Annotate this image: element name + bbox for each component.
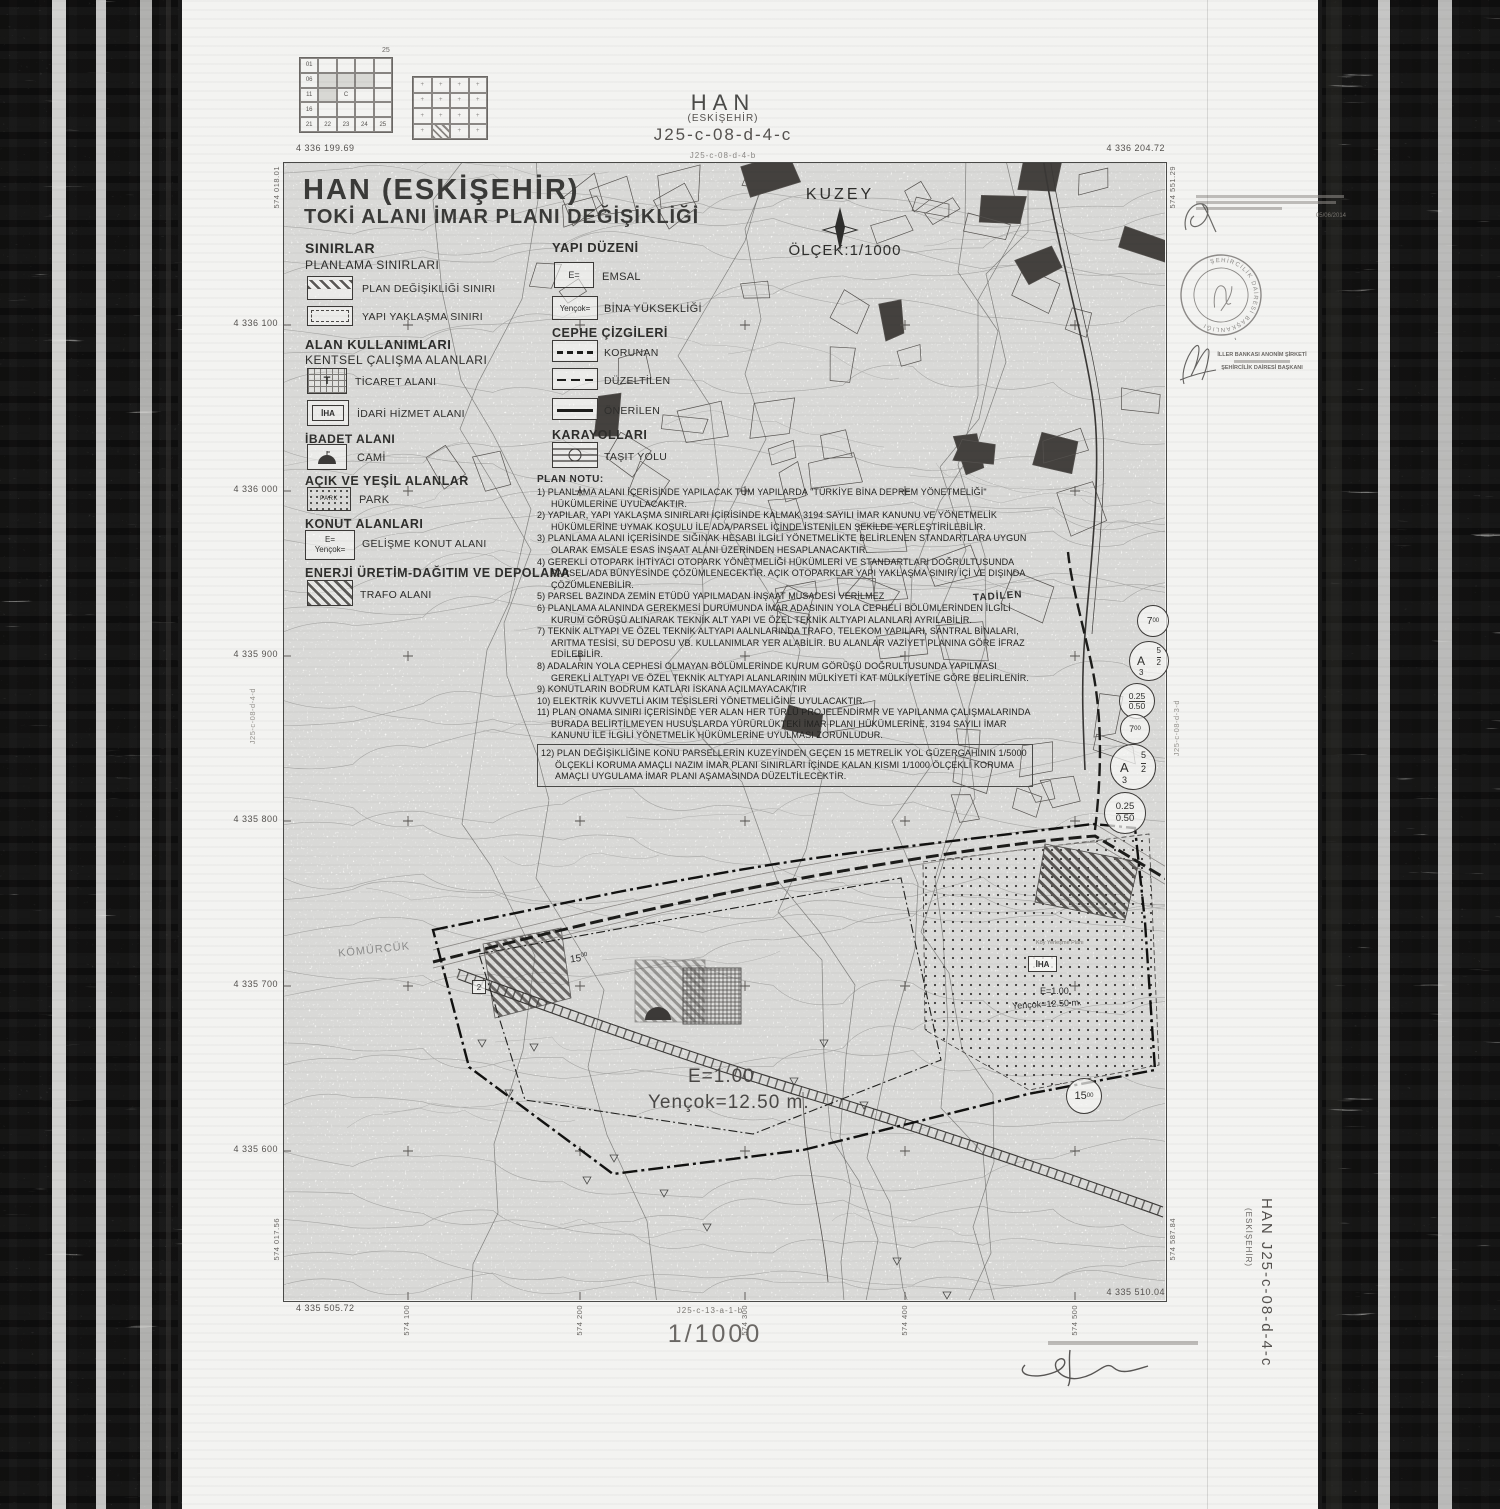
legend-yapi-duzeni-heading: YAPI DÜZENİ — [552, 240, 639, 255]
corner-coordinate-ne: 4 335 505.72 — [296, 1303, 355, 1313]
grid-northing-label: 4 336 100 — [232, 318, 278, 328]
index-cell — [374, 102, 392, 117]
legend-karayollari-heading: KARAYOLLARI — [552, 428, 647, 442]
plan-note: 2) YAPILAR, YAPI YAKLAŞMA SINIRLARI İÇİR… — [537, 510, 1033, 533]
plan-note: 4) GEREKLİ OTOPARK İHTİYACI OTOPARK YÖNE… — [537, 557, 1033, 592]
index-quad-cell: + — [413, 93, 432, 109]
index-cell: 21 — [300, 117, 318, 132]
index-cell — [355, 88, 373, 103]
index-cell — [337, 102, 355, 117]
corner-easting: 574 587.84 — [1168, 1218, 1177, 1261]
index-quad-cell: + — [432, 93, 451, 109]
scan-noise-left — [0, 0, 182, 1509]
legend-enerji-heading: ENERJİ ÜRETİM-DAĞITIM VE DEPOLAMA — [305, 566, 570, 580]
signatory-org: İLLER BANKASI ANONİM ŞİRKETİ — [1204, 352, 1320, 358]
parcel-number-box: 2 — [472, 980, 486, 994]
index-corner-label: 25 — [382, 47, 390, 54]
footer-scale: 1/1000 — [590, 1320, 840, 1349]
corner-easting: 574 018.01 — [272, 166, 281, 209]
building-height-swatch: Yençok= — [552, 296, 598, 320]
adjacent-sheet-right: J25-c-08-d-3-d — [1172, 700, 1181, 756]
index-cell — [374, 88, 392, 103]
adjacent-sheet-left: J25-c-08-d-4-d — [248, 688, 257, 744]
plan-note: 9) KONUTLARIN BODRUM KATLARI İSKANA AÇIL… — [537, 684, 1033, 696]
legend-duzeltilen-label: DÜZELTİLEN — [604, 375, 670, 387]
plan-note: 1) PLANLAMA ALANI İÇERİSİNDE YAPILACAK T… — [537, 487, 1033, 510]
legend-gelisme-label: GELİŞME KONUT ALANI — [362, 538, 487, 550]
index-quad-cell: + — [432, 124, 451, 140]
plan-notes-title: PLAN NOTU: — [537, 474, 1033, 485]
paper-crease — [1207, 0, 1208, 1509]
index-cell: 16 — [300, 102, 318, 117]
adjacent-sheet-bottom: J25-c-13-a-1-b — [600, 1306, 820, 1315]
commercial-area-swatch: T — [307, 368, 347, 394]
plan-note: 3) PLANLAMA ALANI İÇERİSİNDE SIĞINAK HES… — [537, 533, 1033, 556]
index-quad-cell: + — [413, 108, 432, 124]
official-stamp: ŞEHİRCİLİK DAİRESİ BAŞKANLIĞI — [1176, 250, 1266, 340]
corner-coordinate-ne: 4 335 510.04 — [1048, 1287, 1165, 1297]
grid-northing-label: 4 335 800 — [232, 814, 278, 824]
scale-label: ÖLÇEK:1/1000 — [765, 242, 925, 259]
index-cell: 11 — [300, 88, 318, 103]
zone-emsal-label: E=1.00 — [688, 1066, 755, 1088]
index-cell: 06 — [300, 73, 318, 88]
adjacent-sheet-top: J25-c-08-d-4-b — [623, 151, 823, 160]
duzeltilen-line-swatch — [552, 368, 598, 390]
index-quad-cell: + — [469, 93, 488, 109]
index-quad-cell: + — [450, 108, 469, 124]
index-cell — [337, 73, 355, 88]
legend-planlama-heading: PLANLAMA SINIRLARI — [305, 258, 439, 272]
index-quad-cell: + — [469, 124, 488, 140]
setback-boundary-swatch — [307, 306, 353, 326]
taks-kaks-circle: 0.250.50 — [1104, 792, 1146, 834]
index-cell — [355, 73, 373, 88]
index-cell: 22 — [318, 117, 336, 132]
index-cell — [318, 102, 336, 117]
index-cell — [355, 58, 373, 73]
legend-yapi-yaklasma-label: YAPI YAKLAŞMA SINIRI — [362, 311, 483, 323]
iha-zone-tag: İHA — [1028, 956, 1057, 972]
sheet-code: J25-c-08-d-4-c — [623, 125, 823, 145]
legend-cami-label: CAMİ — [357, 452, 386, 464]
admin-service-area-swatch: İHA — [307, 400, 349, 426]
plan-change-boundary-swatch — [307, 276, 353, 300]
grid-easting-label: 574 100 — [402, 1305, 411, 1336]
plan-note: 5) PARSEL BAZINDA ZEMİN ETÜDÜ YAPILMADAN… — [537, 591, 1033, 603]
onerilen-line-swatch — [552, 398, 598, 420]
legend-tasit-yolu-label: TAŞIT YOLU — [604, 451, 667, 463]
corner-coordinate-ne: 4 336 204.72 — [1040, 143, 1165, 153]
grid-northing-label: 4 335 900 — [232, 649, 278, 659]
corner-coordinate-ne: 4 336 199.69 — [296, 143, 355, 153]
index-cell: C — [337, 88, 355, 103]
index-cell — [337, 58, 355, 73]
approval-signature — [1178, 196, 1222, 240]
plan-subtitle: TOKİ ALANI İMAR PLANI DEĞİŞİKLİĞİ — [304, 206, 699, 229]
mosque-swatch — [307, 444, 347, 470]
road-width-circle: 700 — [1137, 605, 1169, 637]
legend-idari-label: İDARİ HİZMET ALANI — [357, 408, 465, 420]
legend-bina-yuksekligi-label: BİNA YÜKSEKLİĞİ — [604, 303, 702, 315]
legend-alan-kullanim-heading: ALAN KULLANIMLARI — [305, 337, 451, 352]
road-width-circle: 1500 — [1066, 1078, 1102, 1114]
zoning-code-circle: A 5 2 3 — [1129, 641, 1169, 681]
index-cell — [318, 88, 336, 103]
legend-emsal-label: EMSAL — [602, 271, 641, 283]
grid-northing-label: 4 335 700 — [232, 979, 278, 989]
plan-note-boxed: 12) PLAN DEĞİŞİKLİĞİNE KONU PARSELLERİN … — [537, 744, 1033, 787]
legend-sinirlar-heading: SINIRLAR — [305, 240, 375, 256]
plan-notes-block: PLAN NOTU: 1) PLANLAMA ALANI İÇERİSİNDE … — [537, 474, 1033, 787]
plan-note: 8) ADALARIN YOLA CEPHESİ OLMAYAN BÖLÜMLE… — [537, 661, 1033, 684]
plan-title: HAN (ESKİŞEHİR) — [303, 174, 580, 207]
sheet-subtitle: (ESKİŞEHİR) — [623, 113, 823, 124]
zoning-code-circle: A 5 2 3 — [1110, 744, 1156, 790]
legend-trafo-label: TRAFO ALANI — [360, 589, 432, 601]
korunan-line-swatch — [552, 340, 598, 362]
legend-cephe-heading: CEPHE ÇİZGİLERİ — [552, 326, 668, 340]
index-quad-cell: + — [432, 108, 451, 124]
index-cell — [318, 73, 336, 88]
index-quad-cell: + — [469, 108, 488, 124]
grid-northing-label: 4 336 000 — [232, 484, 278, 494]
legend-kentsel-heading: KENTSEL ÇALIŞMA ALANLARI — [305, 353, 487, 367]
housing-development-swatch: E=Yençok= — [305, 530, 355, 560]
index-cell — [318, 58, 336, 73]
legend-korunan-label: KORUNAN — [604, 347, 659, 359]
plan-note: 7) TEKNİK ALTYAPI VE ÖZEL TEKNİK ALTYAPI… — [537, 626, 1033, 661]
corner-easting: 574 551.29 — [1168, 166, 1177, 209]
plan-note: 6) PLANLAMA ALANINDA GEREKMESİ DURUMUNDA… — [537, 603, 1033, 626]
index-quad-cell: + — [413, 124, 432, 140]
legend-onerilen-label: ÖNERİLEN — [604, 405, 660, 417]
legend-park-label: PARK — [359, 494, 389, 506]
index-cell: 24 — [355, 117, 373, 132]
index-cell: 25 — [374, 117, 392, 132]
vehicle-road-swatch — [552, 442, 598, 468]
grid-easting-label: 574 200 — [575, 1305, 584, 1336]
grid-easting-label: 574 400 — [900, 1305, 909, 1336]
legend-ticaret-label: TİCARET ALANI — [355, 376, 436, 388]
index-cell — [374, 73, 392, 88]
index-quad-cell: + — [432, 77, 451, 93]
park-swatch: PARK — [307, 487, 351, 511]
iha-emsal-label: E=1.00 — [1040, 986, 1069, 996]
index-cell — [355, 102, 373, 117]
index-cell: 01 — [300, 58, 318, 73]
plan-note: 11) PLAN ONAMA SINIRI İÇERİSİNDE YER ALA… — [537, 707, 1033, 742]
plan-note: 10) ELEKTRİK KUVVETLİ AKIM TESİSLERİ YÖN… — [537, 696, 1033, 708]
legend-konut-heading: KONUT ALANLARI — [305, 517, 423, 531]
margin-sheet-subtitle: (ESKİŞEHİR) — [1244, 1208, 1253, 1267]
index-quad-cell: + — [450, 93, 469, 109]
grid-northing-label: 4 335 600 — [232, 1144, 278, 1154]
signature-bottom — [1010, 1330, 1160, 1390]
index-quad-cell: + — [413, 77, 432, 93]
transformer-area-swatch — [307, 580, 353, 606]
scanned-zoning-plan-page: { "header": { "title": "HAN", "subtitle"… — [0, 0, 1500, 1509]
index-quad-cell: + — [450, 124, 469, 140]
road-width-circle: 700 — [1120, 714, 1150, 744]
legend-acik-yesil-heading: AÇIK VE YEŞİL ALANLAR — [305, 474, 469, 488]
scan-noise-right — [1318, 0, 1500, 1509]
index-quad-cell: + — [469, 77, 488, 93]
signatory-block: İLLER BANKASI ANONİM ŞİRKETİ ŞEHİRCİLİK … — [1204, 352, 1320, 371]
sheet-index-quad-grid: ++++++++++++++++ — [412, 76, 488, 140]
sheet-index-grid: 010611C162122232425 — [299, 57, 393, 133]
index-cell: 23 — [337, 117, 355, 132]
legend-plan-degisikligi-label: PLAN DEĞİŞİKLİĞİ SINIRI — [362, 283, 496, 295]
village-plan-note: Köy Yerleşme Planı — [1036, 940, 1084, 946]
zone-height-label: Yençok=12.50 m. — [648, 1092, 810, 1114]
index-quad-cell: + — [450, 77, 469, 93]
emsal-swatch: E= — [554, 262, 594, 288]
signatory-title: ŞEHİRCİLİK DAİRESİ BAŞKANI — [1204, 365, 1320, 371]
north-label: KUZEY — [770, 186, 910, 204]
margin-sheet-title: HAN J25-c-08-d-4-c — [1258, 1198, 1275, 1367]
corner-easting: 574 017.56 — [272, 1218, 281, 1261]
index-cell — [374, 58, 392, 73]
